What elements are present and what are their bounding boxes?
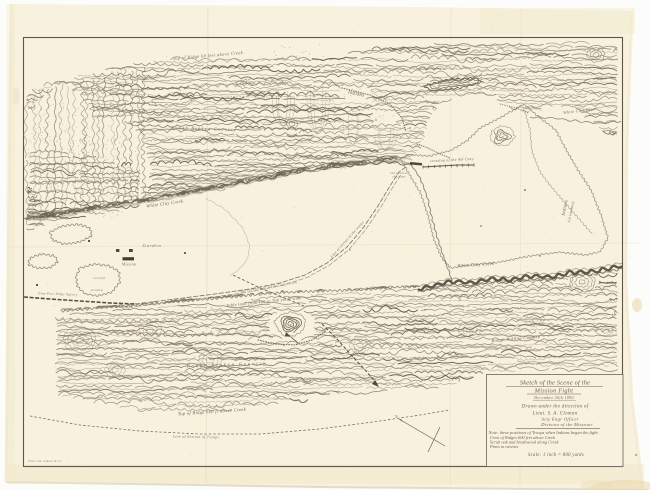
- svg-text:Mission Fight: Mission Fight: [534, 388, 573, 395]
- svg-text:N: N: [395, 415, 398, 419]
- svg-text:Mission: Mission: [121, 263, 136, 267]
- svg-text:Sketch of the Scene of the: Sketch of the Scene of the: [520, 380, 590, 387]
- svg-text:Garden: Garden: [143, 243, 162, 248]
- svg-text:Pines in ravines: Pines in ravines: [489, 444, 519, 449]
- svg-text:meadow: meadow: [91, 288, 104, 292]
- svg-text:Photo lith. A.Hoen & Co.: Photo lith. A.Hoen & Co.: [27, 459, 62, 463]
- svg-text:orchard: orchard: [93, 276, 105, 280]
- svg-text:December 30th 1890: December 30th 1890: [533, 395, 574, 400]
- svg-text:Acty Engr Officer: Acty Engr Officer: [540, 417, 579, 422]
- svg-text:Drawn under the direction of: Drawn under the direction of: [521, 405, 589, 410]
- svg-text:Scale: 1 inch = 800 yards: Scale: 1 inch = 800 yards: [528, 453, 584, 458]
- svg-text:of Troops: of Troops: [392, 175, 406, 179]
- svg-text:Division of the Missouri: Division of the Missouri: [540, 422, 593, 427]
- svg-text:Line of Retreat of Troops: Line of Retreat of Troops: [172, 435, 220, 440]
